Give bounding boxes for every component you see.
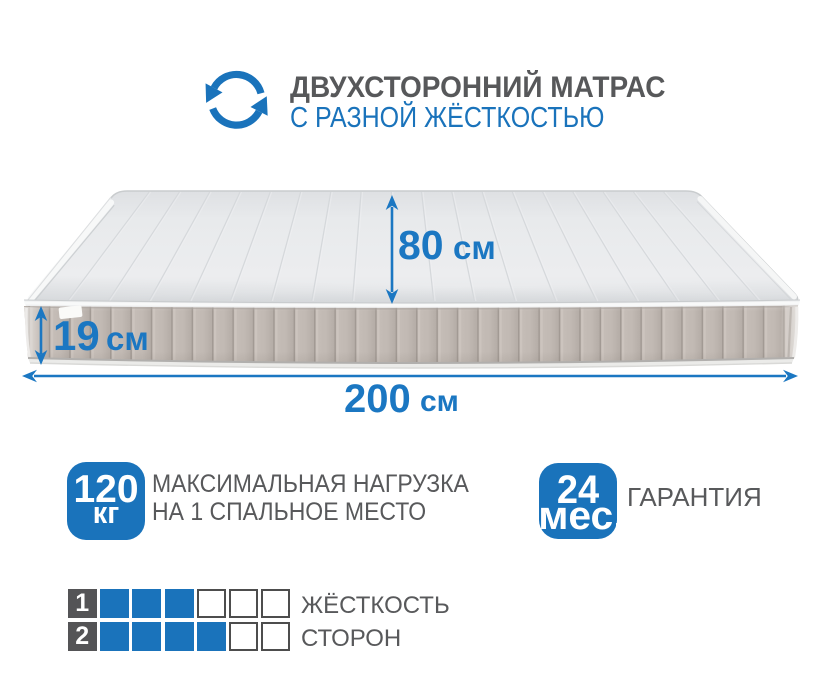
svg-text:см: см — [420, 385, 459, 418]
svg-text:см: см — [453, 229, 496, 266]
svg-text:см: см — [106, 320, 149, 357]
svg-text:80: 80 — [398, 222, 444, 268]
svg-text:200: 200 — [344, 377, 411, 421]
svg-text:19: 19 — [53, 312, 100, 359]
